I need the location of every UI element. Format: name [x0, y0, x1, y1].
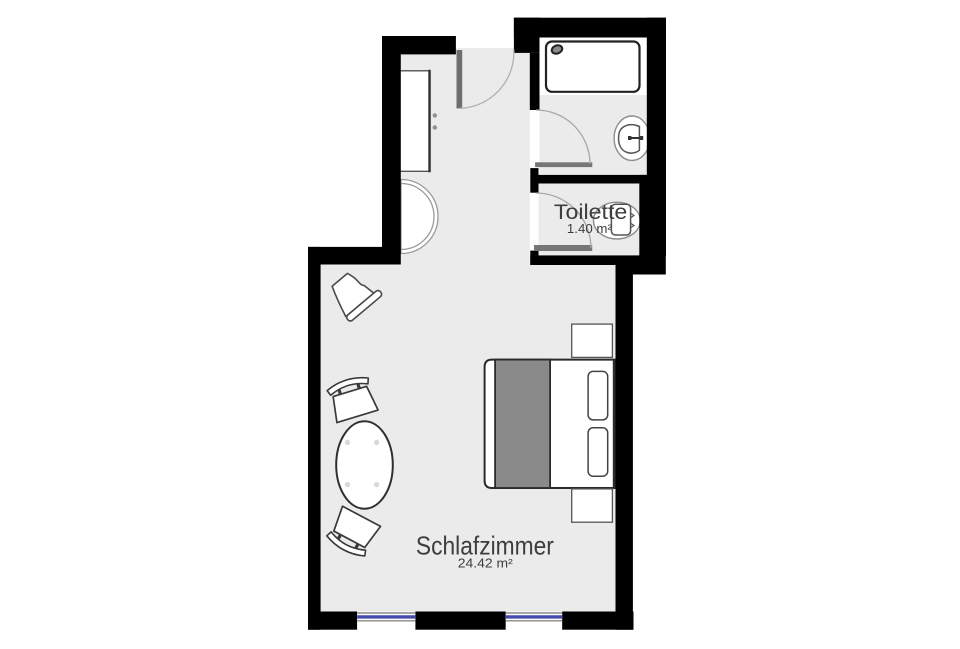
svg-text:Toilette: Toilette	[554, 201, 628, 224]
svg-text:24.42 m²: 24.42 m²	[458, 556, 514, 571]
svg-text:1.40 m²: 1.40 m²	[567, 222, 612, 236]
